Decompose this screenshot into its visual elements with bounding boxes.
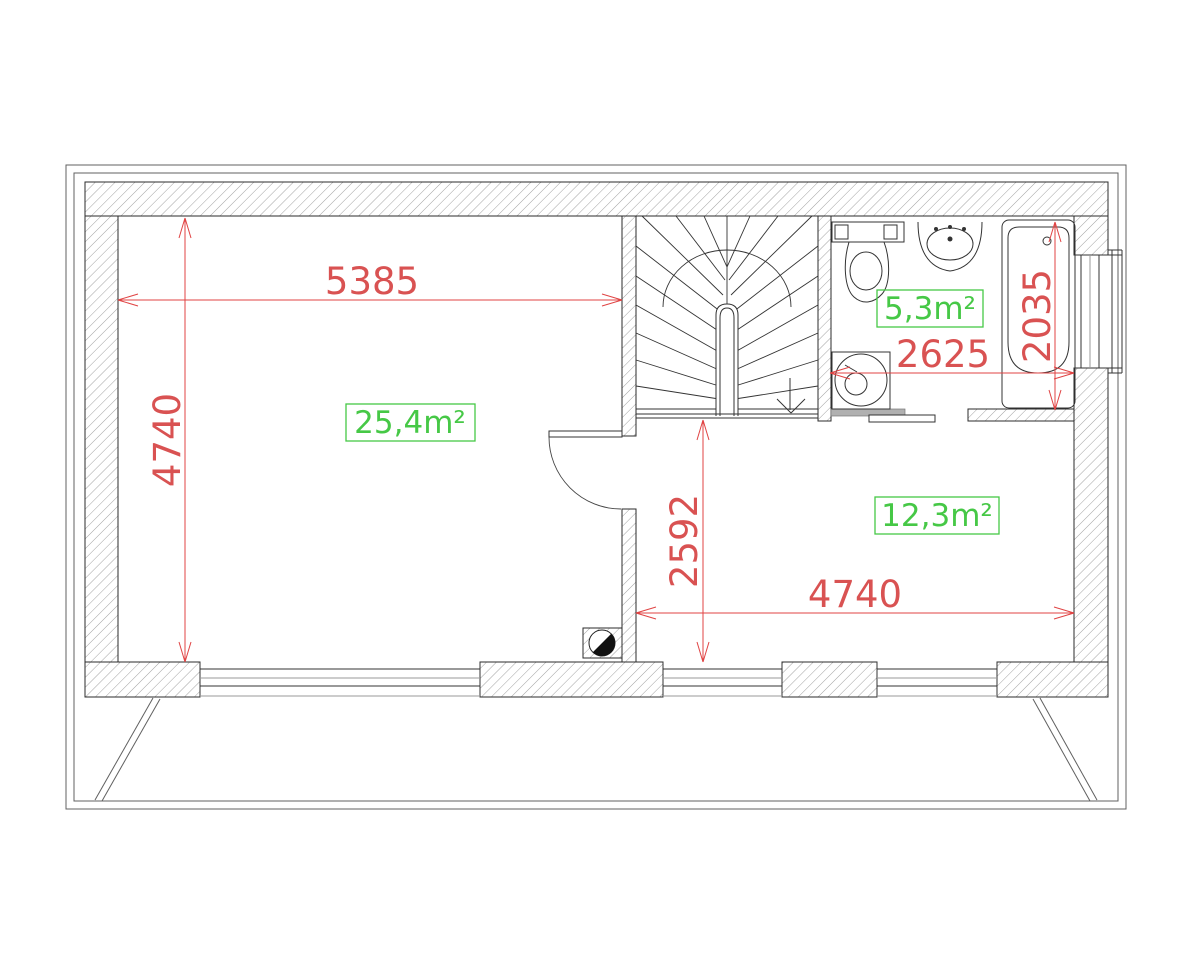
area-label-bedroom: 12,3m²	[875, 497, 999, 534]
floor-plan-canvas: 5385 4740 2035 2625 2592 4740 25,4m² 5,3…	[0, 0, 1200, 960]
dimension-4740-left: 4740	[146, 218, 191, 662]
dim-label-4740-right: 4740	[808, 573, 902, 616]
wall-bottom-3	[782, 662, 877, 697]
wall-middle-lower	[622, 509, 636, 662]
dim-label-2035: 2035	[1016, 269, 1059, 363]
sink-faucet	[948, 237, 953, 242]
sliding-door-leaf	[869, 415, 935, 422]
door-swing-arc	[549, 437, 621, 509]
wall-stairs-right	[818, 216, 831, 421]
door-leaf	[549, 431, 622, 437]
wall-bottom-4	[997, 662, 1108, 697]
washing-machine	[832, 352, 890, 409]
stair-direction-arrow	[777, 378, 805, 413]
sink	[918, 222, 982, 271]
dim-label-2592: 2592	[663, 494, 706, 588]
wall-bottom-2	[480, 662, 663, 697]
wall-middle-upper	[622, 216, 636, 436]
wall-left	[85, 216, 118, 662]
dim-label-2625: 2625	[896, 333, 990, 376]
dim-label-4740-left: 4740	[146, 393, 189, 487]
dimension-2035: 2035	[1016, 222, 1061, 410]
floor-plan-drawing: 5385 4740 2035 2625 2592 4740 25,4m² 5,3…	[0, 0, 1200, 960]
wall-right-upper	[1074, 216, 1108, 255]
wall-top	[85, 182, 1108, 216]
window-right-wall	[1074, 250, 1122, 373]
area-label-living: 25,4m²	[346, 404, 475, 441]
dimension-2592: 2592	[663, 420, 709, 662]
area-text-bath: 5,3m²	[884, 291, 976, 327]
area-label-bath: 5,3m²	[877, 290, 983, 327]
stair-newel-outer	[716, 304, 738, 416]
wall-bath-partition	[968, 409, 1074, 421]
door-living-room	[549, 431, 622, 509]
area-text-living: 25,4m²	[354, 405, 466, 441]
roof-eaves-outline	[66, 165, 1126, 809]
window-bottom-middle	[663, 662, 782, 697]
bathroom-sliding-door	[831, 409, 935, 422]
wall-bottom-1	[85, 662, 200, 697]
dim-label-5385: 5385	[325, 260, 419, 303]
window-bottom-left	[200, 662, 480, 697]
wall-right-lower	[1074, 368, 1108, 662]
dimension-5385: 5385	[118, 260, 622, 306]
staircase	[636, 216, 818, 418]
flue-symbol	[583, 628, 622, 658]
window-bottom-right	[877, 662, 997, 697]
area-text-bedroom: 12,3m²	[881, 498, 993, 534]
